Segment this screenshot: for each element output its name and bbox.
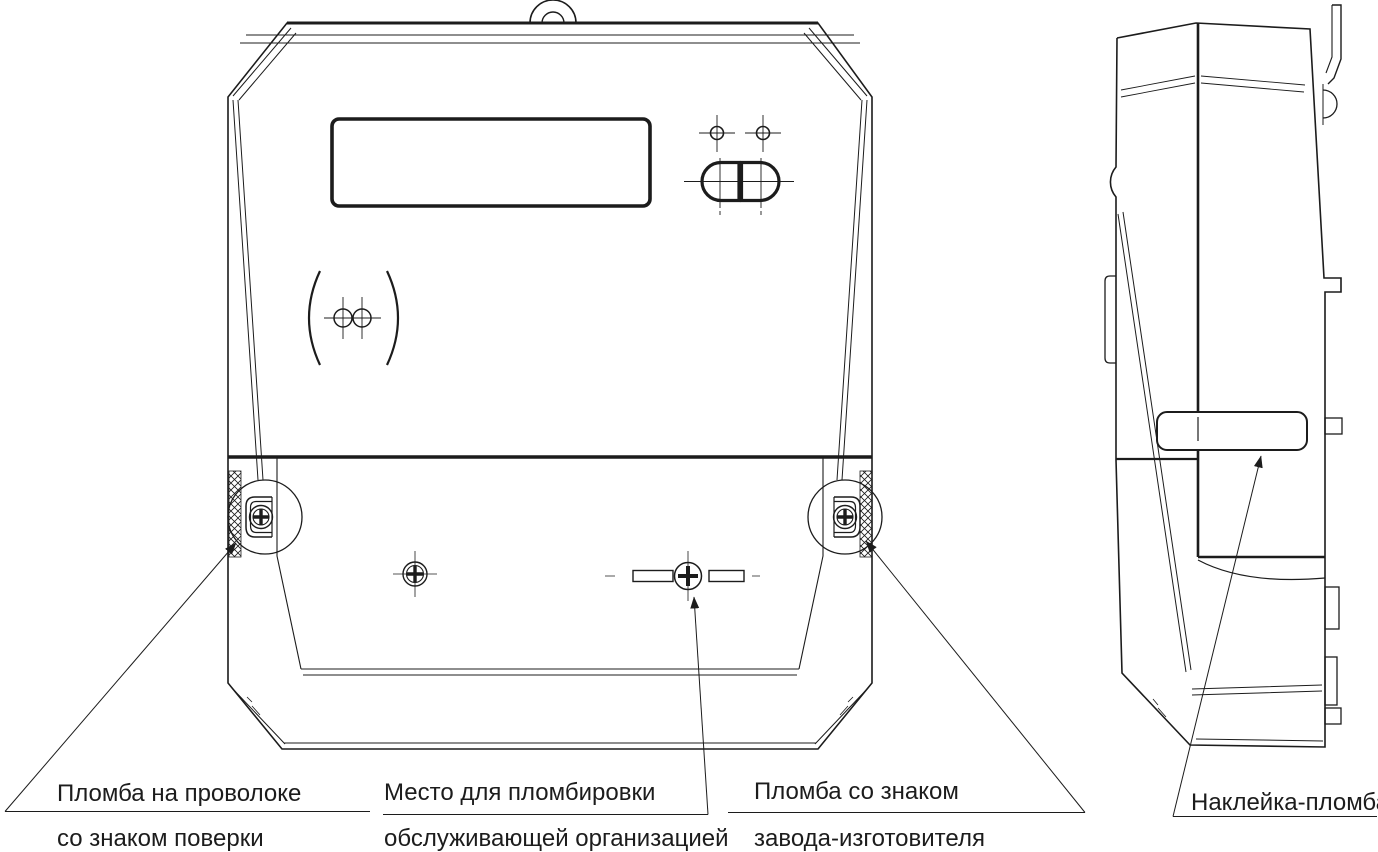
sticker-seal [1157, 412, 1307, 450]
mounting-tabs [1325, 418, 1342, 724]
cover-screw-left [393, 551, 437, 597]
label-service-seal-line1: Место для пломбировки [384, 779, 655, 806]
side-front-edge [1110, 38, 1117, 460]
callouts: Пломба на проволоке со знаком поверки Ме… [5, 456, 1378, 852]
service-seal-screw [605, 551, 760, 601]
led-indicators [699, 115, 781, 152]
label-verification-seal-line2: со знаком поверки [57, 825, 264, 852]
seal-bar-left [633, 571, 673, 582]
side-view [1105, 5, 1342, 747]
side-case-outline [1116, 23, 1341, 747]
seal-left-verification [228, 471, 302, 557]
label-sticker-seal: Наклейка-пломба [1191, 789, 1378, 816]
lcd-display [332, 119, 650, 206]
control-buttons [684, 158, 794, 215]
right-facet-lines [837, 100, 867, 480]
front-view [228, 0, 882, 749]
optical-port [309, 271, 398, 365]
meter-seal-diagram: Пломба на проволоке со знаком поверки Ме… [0, 0, 1378, 852]
label-factory-seal-line2: завода-изготовителя [754, 825, 985, 852]
label-verification-seal-line1: Пломба на проволоке [57, 780, 301, 807]
seal-bar-right [709, 571, 744, 582]
leader-factory-seal [866, 541, 1085, 813]
leader-verification-seal [5, 543, 236, 812]
seal-right-factory [808, 471, 882, 557]
label-service-seal-line2: обслуживающей организацией [384, 825, 728, 852]
left-facet-lines [233, 100, 263, 480]
leader-service-seal [694, 597, 708, 815]
side-tab [1105, 276, 1116, 363]
hanging-hook [1328, 5, 1341, 84]
hook-boss [1323, 90, 1337, 118]
technical-diagram: Пломба на проволоке со знаком поверки Ме… [0, 0, 1378, 852]
front-case-outline [228, 23, 872, 749]
label-factory-seal-line1: Пломба со знаком [754, 778, 959, 805]
